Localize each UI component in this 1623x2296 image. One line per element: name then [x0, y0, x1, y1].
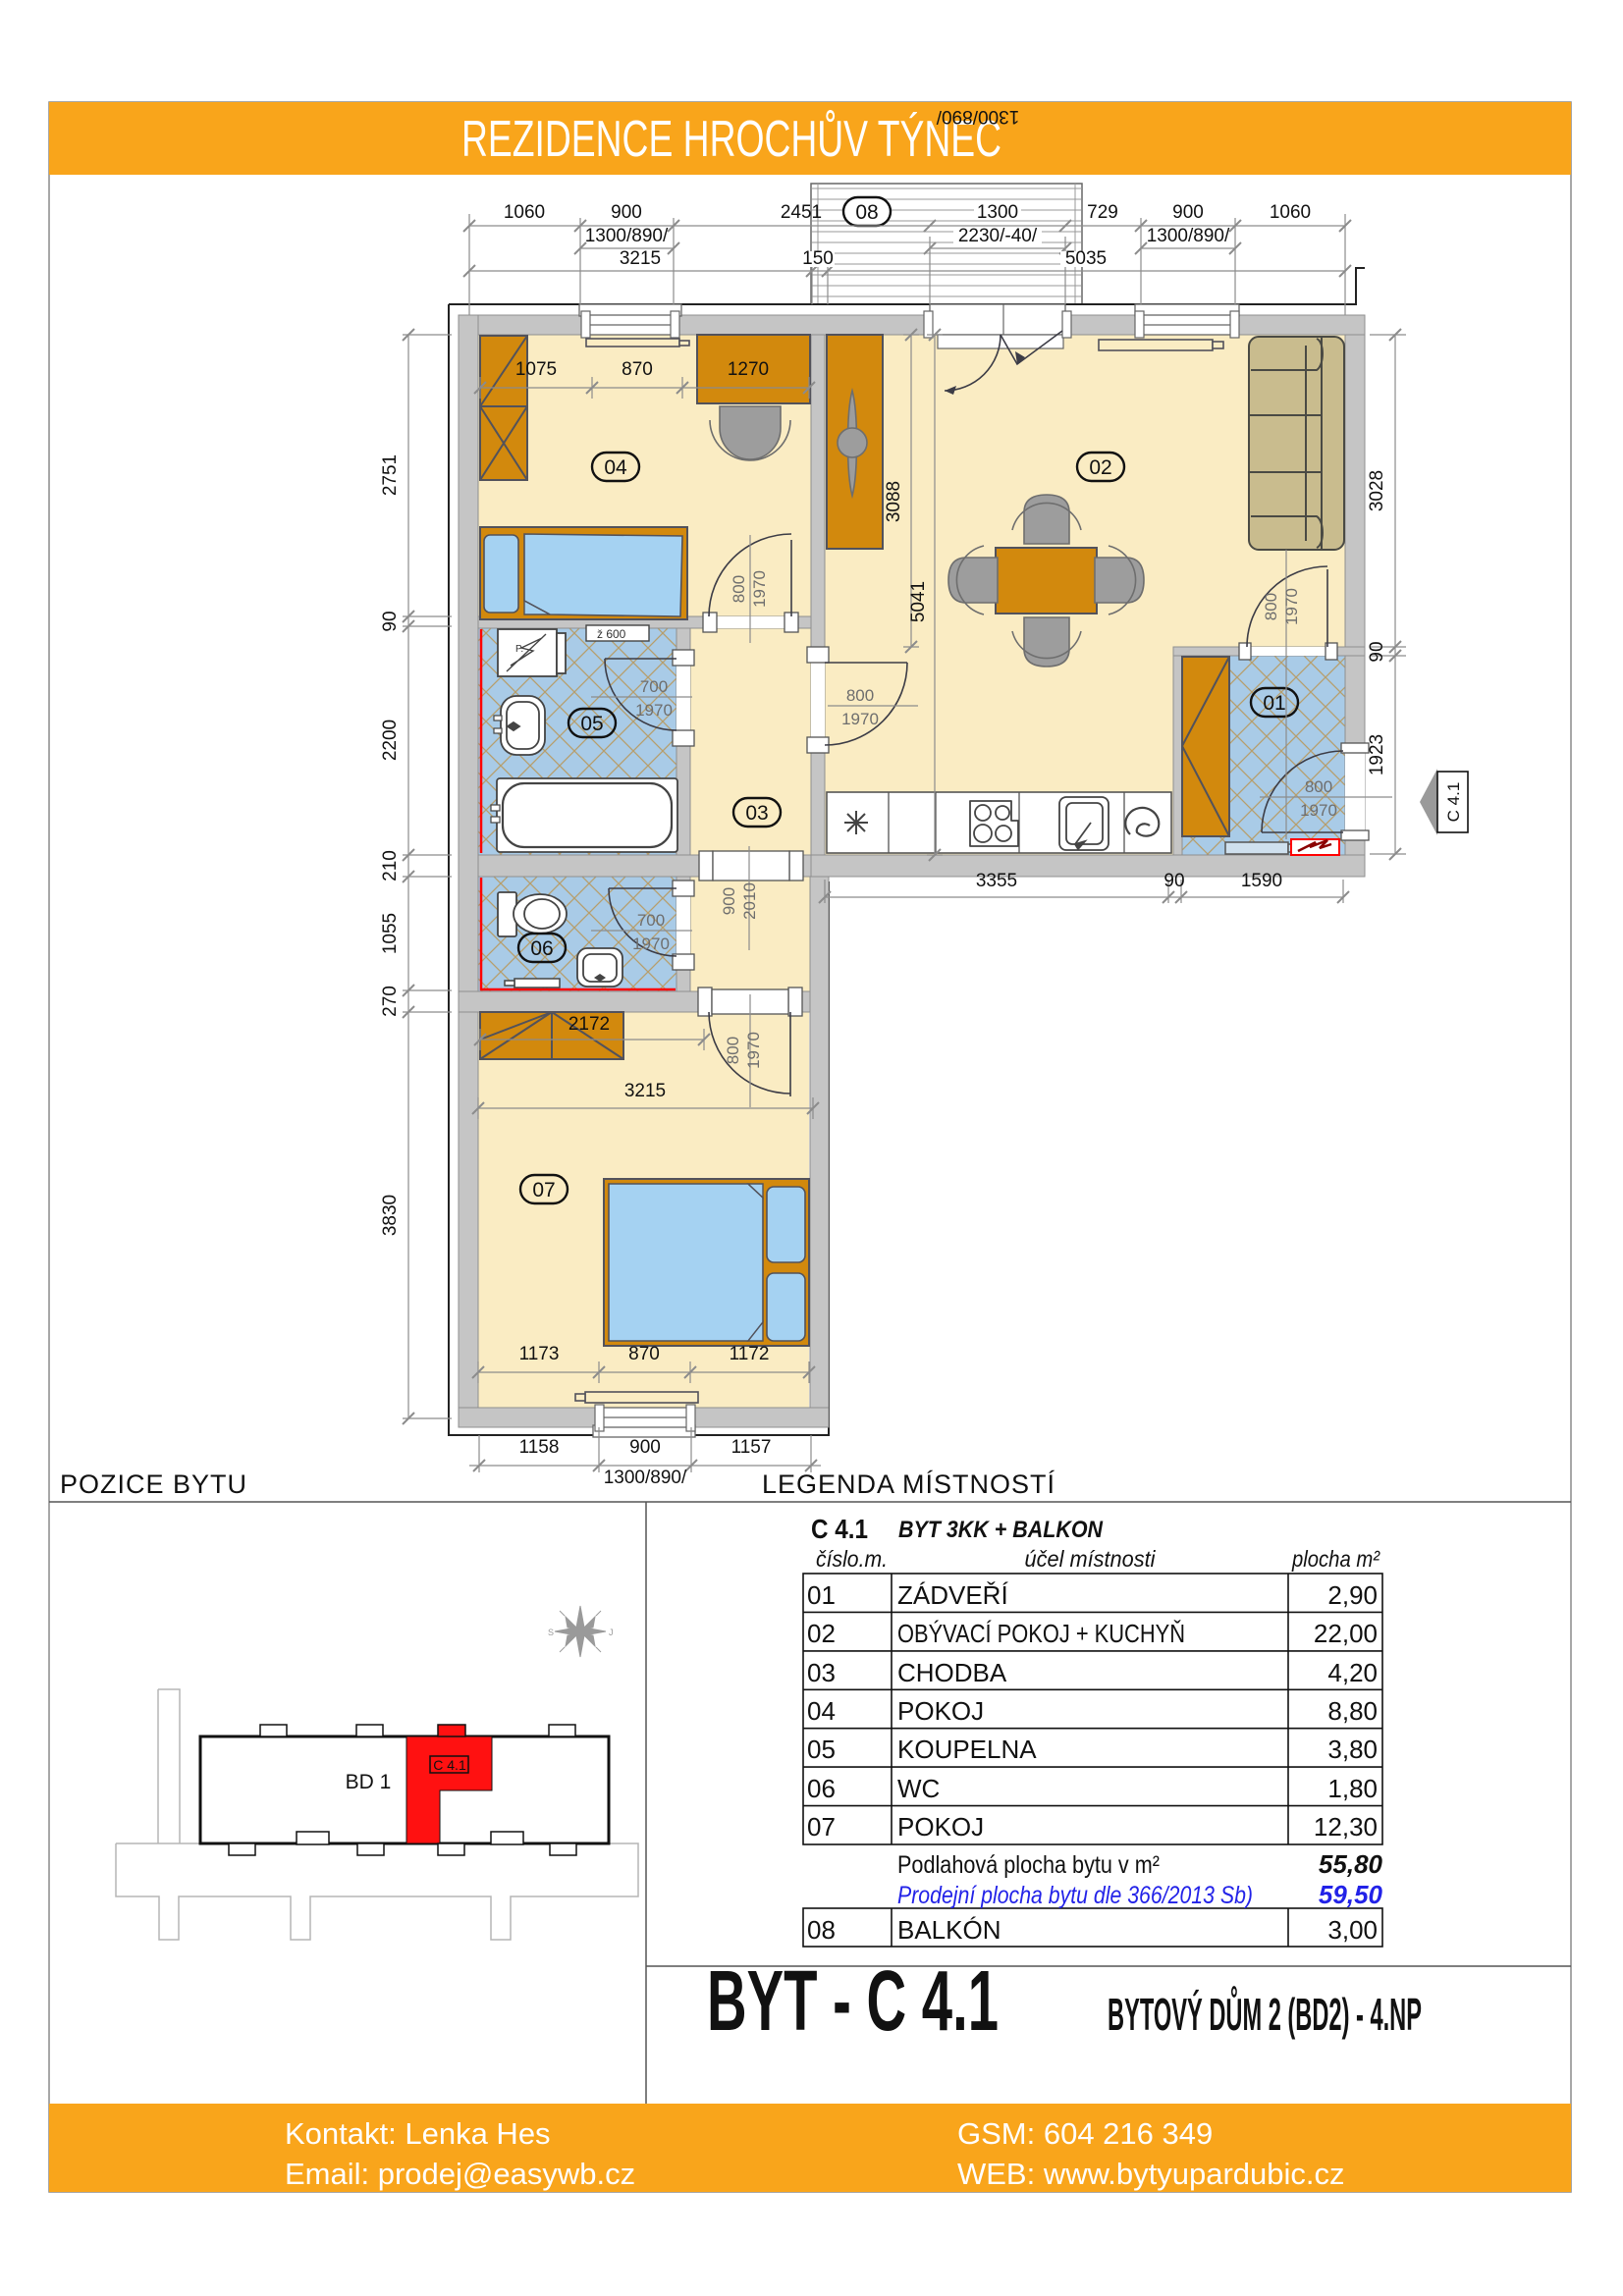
svg-text:05: 05 — [807, 1735, 836, 1764]
svg-text:900: 900 — [720, 887, 738, 915]
svg-text:C 4.1: C 4.1 — [1444, 782, 1463, 823]
svg-text:1970: 1970 — [1300, 801, 1337, 820]
svg-text:1923: 1923 — [1367, 734, 1387, 775]
svg-text:REZIDENCE HROCHŮV TÝNEC: REZIDENCE HROCHŮV TÝNEC — [461, 110, 1001, 168]
svg-text:POKOJ: POKOJ — [897, 1812, 984, 1842]
svg-text:BD 1: BD 1 — [346, 1771, 392, 1793]
svg-text:900: 900 — [629, 1437, 661, 1458]
svg-text:4,20: 4,20 — [1327, 1658, 1378, 1687]
svg-text:OBÝVACÍ POKOJ + KUCHYŇ: OBÝVACÍ POKOJ + KUCHYŇ — [897, 1619, 1185, 1648]
svg-text:1075: 1075 — [515, 359, 557, 380]
svg-text:04: 04 — [604, 456, 627, 479]
svg-text:2010: 2010 — [740, 882, 759, 920]
svg-text:BYT 3KK + BALKON: BYT 3KK + BALKON — [898, 1517, 1104, 1543]
svg-text:06: 06 — [807, 1774, 836, 1803]
svg-text:1172: 1172 — [730, 1344, 770, 1364]
svg-text:1060: 1060 — [504, 202, 545, 223]
svg-text:3,00: 3,00 — [1327, 1915, 1378, 1945]
svg-text:800: 800 — [724, 1037, 742, 1064]
svg-text:3,80: 3,80 — [1327, 1735, 1378, 1764]
svg-text:POZICE BYTU: POZICE BYTU — [60, 1469, 247, 1499]
svg-text:C 4.1: C 4.1 — [433, 1757, 466, 1773]
svg-text:3215: 3215 — [620, 248, 661, 269]
svg-text:3830: 3830 — [380, 1195, 401, 1236]
svg-text:90: 90 — [1163, 871, 1184, 891]
svg-text:1,80: 1,80 — [1327, 1774, 1378, 1803]
svg-text:BYT - C 4.1: BYT - C 4.1 — [707, 1953, 999, 2049]
svg-text:1173: 1173 — [519, 1344, 560, 1364]
svg-text:03: 03 — [807, 1658, 836, 1687]
svg-text:8,80: 8,80 — [1327, 1696, 1378, 1726]
svg-text:90: 90 — [1367, 641, 1387, 662]
svg-text:07: 07 — [807, 1812, 836, 1842]
svg-text:900: 900 — [611, 202, 642, 223]
svg-text:Kontakt: Lenka Hes: Kontakt: Lenka Hes — [285, 2116, 551, 2151]
svg-text:1590: 1590 — [1241, 871, 1282, 891]
svg-text:P.: P. — [515, 644, 523, 655]
svg-text:01: 01 — [1263, 692, 1285, 715]
svg-text:plocha m²: plocha m² — [1291, 1546, 1380, 1572]
svg-text:1300: 1300 — [977, 202, 1018, 223]
svg-text:800: 800 — [846, 686, 874, 705]
svg-text:2172: 2172 — [568, 1014, 610, 1035]
svg-text:BYTOVÝ DŮM 2 (BD2) - 4.NP: BYTOVÝ DŮM 2 (BD2) - 4.NP — [1108, 1986, 1422, 2040]
svg-text:3215: 3215 — [624, 1081, 666, 1101]
svg-text:1300/890/: 1300/890/ — [1147, 226, 1230, 246]
svg-text:účel místnosti: účel místnosti — [1025, 1546, 1157, 1572]
svg-text:číslo.m.: číslo.m. — [816, 1546, 888, 1572]
svg-text:59,50: 59,50 — [1319, 1880, 1383, 1909]
svg-text:1158: 1158 — [519, 1437, 560, 1458]
svg-text:Prodejní plocha bytu dle 366/2: Prodejní plocha bytu dle 366/2013 Sb) — [897, 1882, 1253, 1909]
svg-text:2200: 2200 — [380, 720, 401, 761]
svg-text:1970: 1970 — [1282, 588, 1301, 625]
svg-text:02: 02 — [807, 1619, 836, 1648]
svg-text:BALKÓN: BALKÓN — [897, 1915, 1001, 1945]
svg-text:270: 270 — [380, 986, 401, 1017]
svg-text:07: 07 — [532, 1179, 555, 1201]
svg-text:700: 700 — [637, 911, 665, 930]
svg-text:1970: 1970 — [632, 934, 670, 953]
svg-text:800: 800 — [1305, 777, 1332, 796]
svg-text:729: 729 — [1087, 202, 1118, 223]
svg-text:5041: 5041 — [908, 581, 929, 622]
svg-text:06: 06 — [530, 937, 553, 960]
svg-text:CHODBA: CHODBA — [897, 1658, 1007, 1687]
svg-text:870: 870 — [628, 1344, 660, 1364]
svg-text:2,90: 2,90 — [1327, 1580, 1378, 1610]
svg-text:C 4.1: C 4.1 — [811, 1514, 868, 1544]
svg-text:1970: 1970 — [744, 1032, 763, 1069]
svg-text:S: S — [548, 1628, 554, 1637]
svg-text:08: 08 — [855, 201, 878, 224]
svg-text:GSM: 604 216 349: GSM: 604 216 349 — [957, 2116, 1213, 2151]
svg-text:05: 05 — [580, 713, 603, 735]
svg-text:1970: 1970 — [841, 710, 879, 728]
svg-text:2451: 2451 — [781, 202, 822, 223]
svg-text:12,30: 12,30 — [1314, 1812, 1378, 1842]
svg-text:WEB: www.bytyupardubic.cz: WEB: www.bytyupardubic.cz — [957, 2157, 1345, 2191]
svg-text:1157: 1157 — [731, 1437, 772, 1458]
svg-text:3088: 3088 — [884, 481, 904, 522]
svg-text:02: 02 — [1089, 456, 1111, 479]
svg-text:1270: 1270 — [728, 359, 769, 380]
svg-text:LEGENDA MÍSTNOSTÍ: LEGENDA MÍSTNOSTÍ — [762, 1469, 1055, 1499]
svg-text:1300/890/: 1300/890/ — [936, 106, 1019, 127]
svg-text:Podlahová plocha bytu v m²: Podlahová plocha bytu v m² — [897, 1851, 1160, 1879]
svg-text:04: 04 — [807, 1696, 836, 1726]
svg-text:3355: 3355 — [976, 871, 1017, 891]
svg-text:KOUPELNA: KOUPELNA — [897, 1735, 1037, 1764]
svg-text:1300/890/: 1300/890/ — [604, 1468, 687, 1488]
svg-text:3028: 3028 — [1367, 470, 1387, 511]
svg-text:1300/890/: 1300/890/ — [585, 226, 669, 246]
svg-text:POKOJ: POKOJ — [897, 1696, 984, 1726]
svg-text:J: J — [609, 1628, 614, 1637]
svg-text:800: 800 — [1262, 593, 1280, 620]
svg-text:5035: 5035 — [1065, 248, 1107, 269]
svg-text:150: 150 — [802, 248, 834, 269]
svg-text:WC: WC — [897, 1774, 940, 1803]
svg-text:ZÁDVEŘÍ: ZÁDVEŘÍ — [897, 1580, 1008, 1610]
svg-text:870: 870 — [622, 359, 653, 380]
svg-text:90: 90 — [380, 611, 401, 631]
svg-text:08: 08 — [807, 1915, 836, 1945]
svg-text:1055: 1055 — [380, 913, 401, 954]
svg-text:1970: 1970 — [750, 570, 769, 608]
svg-text:1970: 1970 — [635, 701, 673, 720]
svg-text:800: 800 — [730, 575, 748, 603]
svg-text:55,80: 55,80 — [1319, 1849, 1383, 1879]
svg-text:210: 210 — [380, 850, 401, 881]
svg-text:01: 01 — [807, 1580, 836, 1610]
svg-text:03: 03 — [745, 802, 768, 825]
svg-text:1060: 1060 — [1270, 202, 1311, 223]
svg-text:22,00: 22,00 — [1314, 1619, 1378, 1648]
svg-text:Email: prodej@easywb.cz: Email: prodej@easywb.cz — [285, 2157, 635, 2191]
svg-text:2230/-40/: 2230/-40/ — [958, 226, 1038, 246]
svg-text:2751: 2751 — [380, 454, 401, 496]
svg-text:900: 900 — [1172, 202, 1204, 223]
svg-text:700: 700 — [640, 677, 668, 696]
svg-text:ž 600: ž 600 — [597, 627, 626, 641]
